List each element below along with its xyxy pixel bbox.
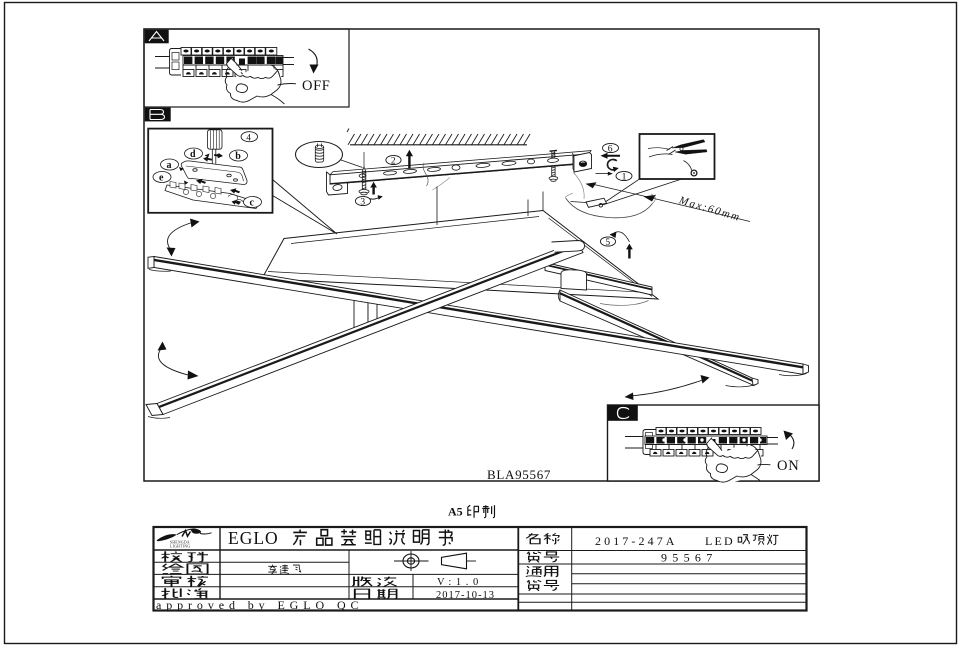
svg-text:LIGHTING: LIGHTING	[170, 545, 190, 549]
svg-text:1: 1	[622, 173, 627, 183]
svg-text:OFF: OFF	[302, 78, 330, 94]
svg-text:ON: ON	[777, 458, 800, 474]
svg-text:b: b	[235, 151, 241, 162]
svg-text:3: 3	[360, 198, 365, 208]
svg-text:LED: LED	[705, 534, 735, 548]
svg-text:2017-247A: 2017-247A	[595, 534, 678, 548]
svg-text:5: 5	[605, 238, 610, 248]
svg-text:BLA95567: BLA95567	[487, 467, 551, 482]
svg-text:2: 2	[391, 157, 396, 167]
svg-text:c: c	[250, 198, 255, 209]
svg-text:EGLO: EGLO	[228, 528, 279, 548]
svg-text:approved by EGLO QC: approved by EGLO QC	[156, 598, 363, 612]
svg-text:95567: 95567	[661, 551, 718, 565]
svg-text:4: 4	[246, 133, 251, 143]
svg-text:6: 6	[608, 145, 613, 155]
svg-text:2017-10-13: 2017-10-13	[436, 590, 495, 601]
svg-text:d: d	[190, 149, 196, 160]
svg-text:a: a	[167, 160, 172, 171]
svg-text:V:1.0: V:1.0	[437, 577, 483, 588]
svg-text:e: e	[159, 173, 164, 184]
svg-text:A5: A5	[448, 505, 463, 519]
